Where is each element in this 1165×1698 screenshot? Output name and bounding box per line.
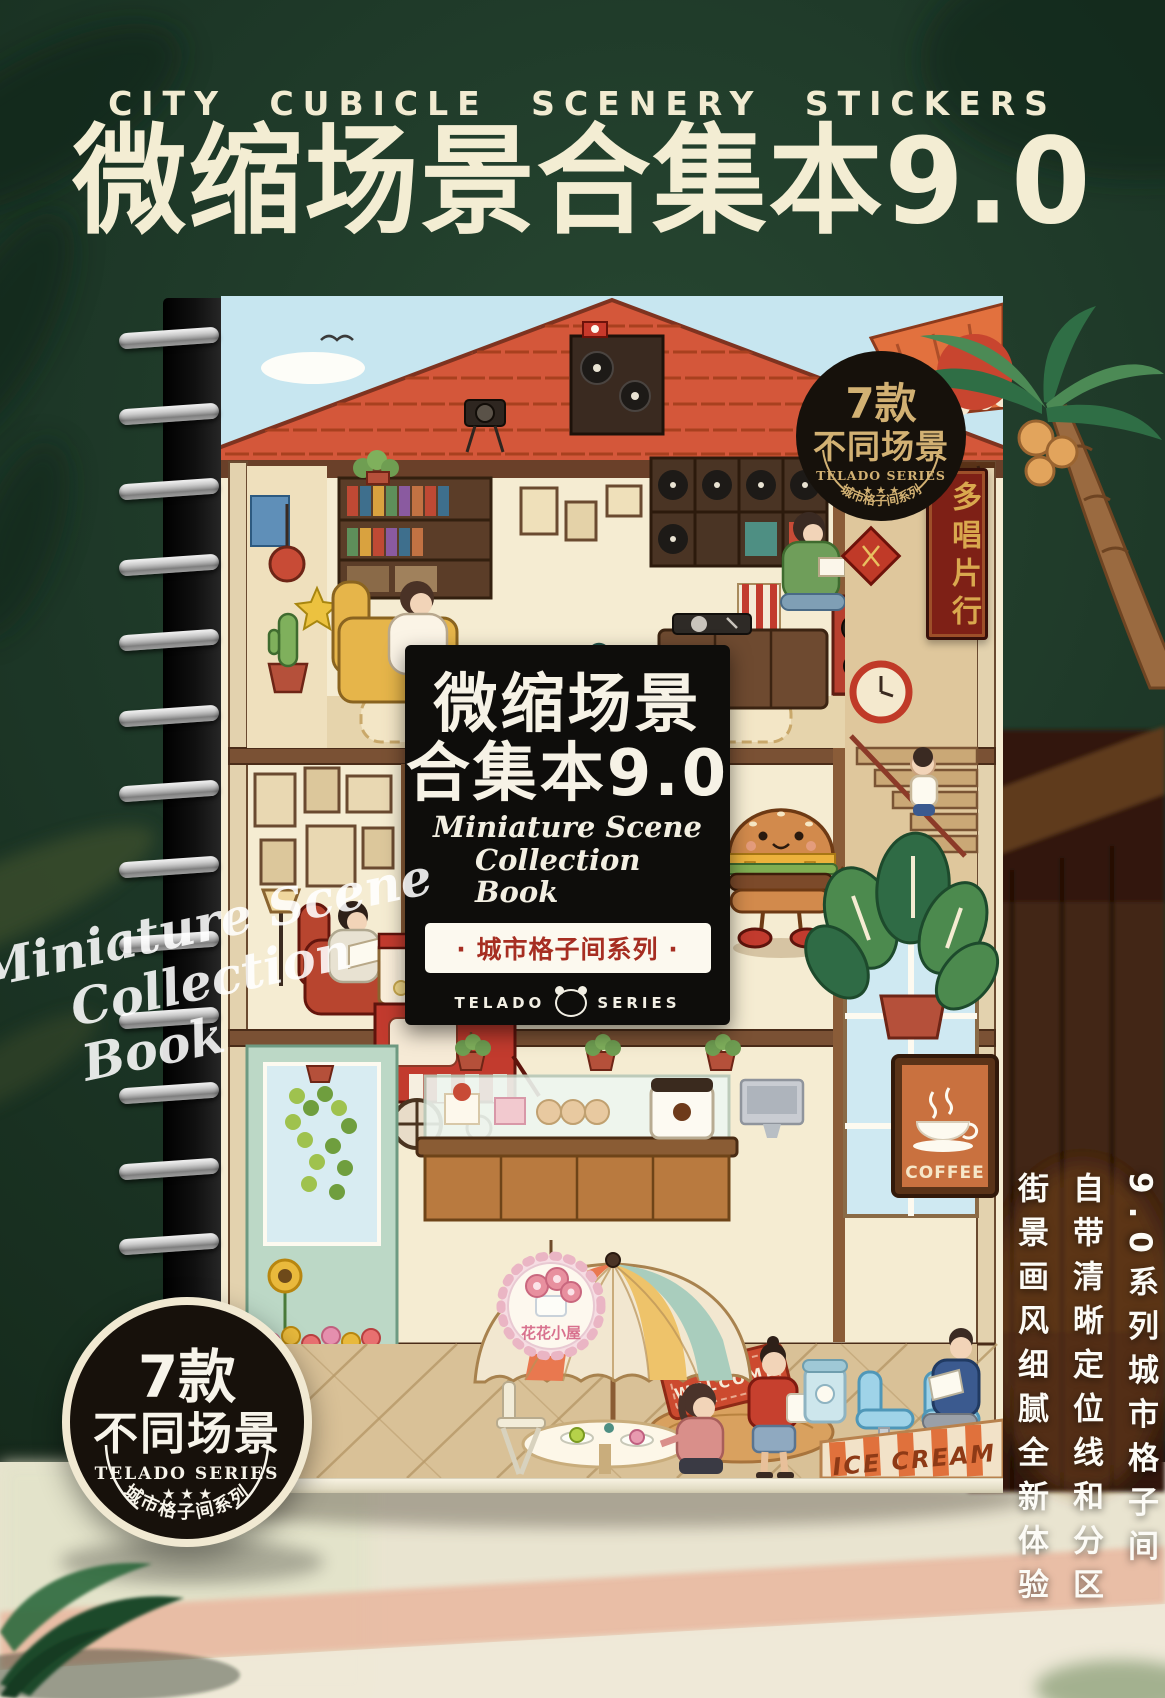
trash-bin [803,1360,847,1422]
cover-label: 微缩场景 合集本9.0 Miniature Scene Collection B… [405,645,730,1025]
label-script-line2: Collection Book [475,844,730,909]
book-page-edge [221,1478,1003,1493]
red-lamp-icon [270,547,304,581]
coffee-sign-text: COFFEE [905,1163,984,1183]
flower-shop-sign-text: 花花小屋 [521,1324,581,1342]
label-title-line1: 微缩场景 [434,671,702,740]
floor-lamp-icon [263,890,299,912]
label-script-line1: Miniature Scene [433,811,702,843]
label-brand-left: TELADO [454,994,545,1012]
badge-top-right: 7款 不同场景 TELADO SERIES ★ ★ ★ 城市格子间系列 [795,350,967,522]
poster: CITY CUBICLE SCENERY STICKERS 微缩场景合集本9.0 [0,0,1165,1698]
vertical-text-col3: 街景画风细腻全新体验 [1008,1172,1053,1672]
page-title: 微缩场景合集本9.0 [0,113,1165,249]
label-title-line2: 合集本9.0 [406,740,729,809]
badge-bottom-left: 7款 不同场景 TELADO SERIES ★ ★ ★ 城市格子间系列 [62,1297,312,1547]
badge-tr-count: 7款 [845,379,916,428]
panda-logo-icon [555,989,587,1017]
badge-tr-scenes: 不同场景 [813,427,949,466]
badge-bl-scenes: 不同场景 [93,1407,281,1460]
coffee-sign: COFFEE [893,1056,997,1196]
label-brand-right: SERIES [597,994,680,1012]
label-brand-row: TELADO SERIES [454,989,680,1017]
badge-bl-count: 7款 [138,1343,236,1411]
badge-bl-brand: TELADO SERIES [95,1464,280,1484]
cactus-icon [279,614,297,666]
marketing-vertical-text: 9.0系列城市格子间 自带清晰定位线和分区 街景画风细腻全新体验 [998,1172,1165,1672]
vertical-text-col2: 自带清晰定位线和分区 [1063,1172,1108,1672]
label-series-band: · 城市格子间系列 · [425,923,711,973]
vertical-text-col1: 9.0系列城市格子间 [1118,1172,1163,1672]
